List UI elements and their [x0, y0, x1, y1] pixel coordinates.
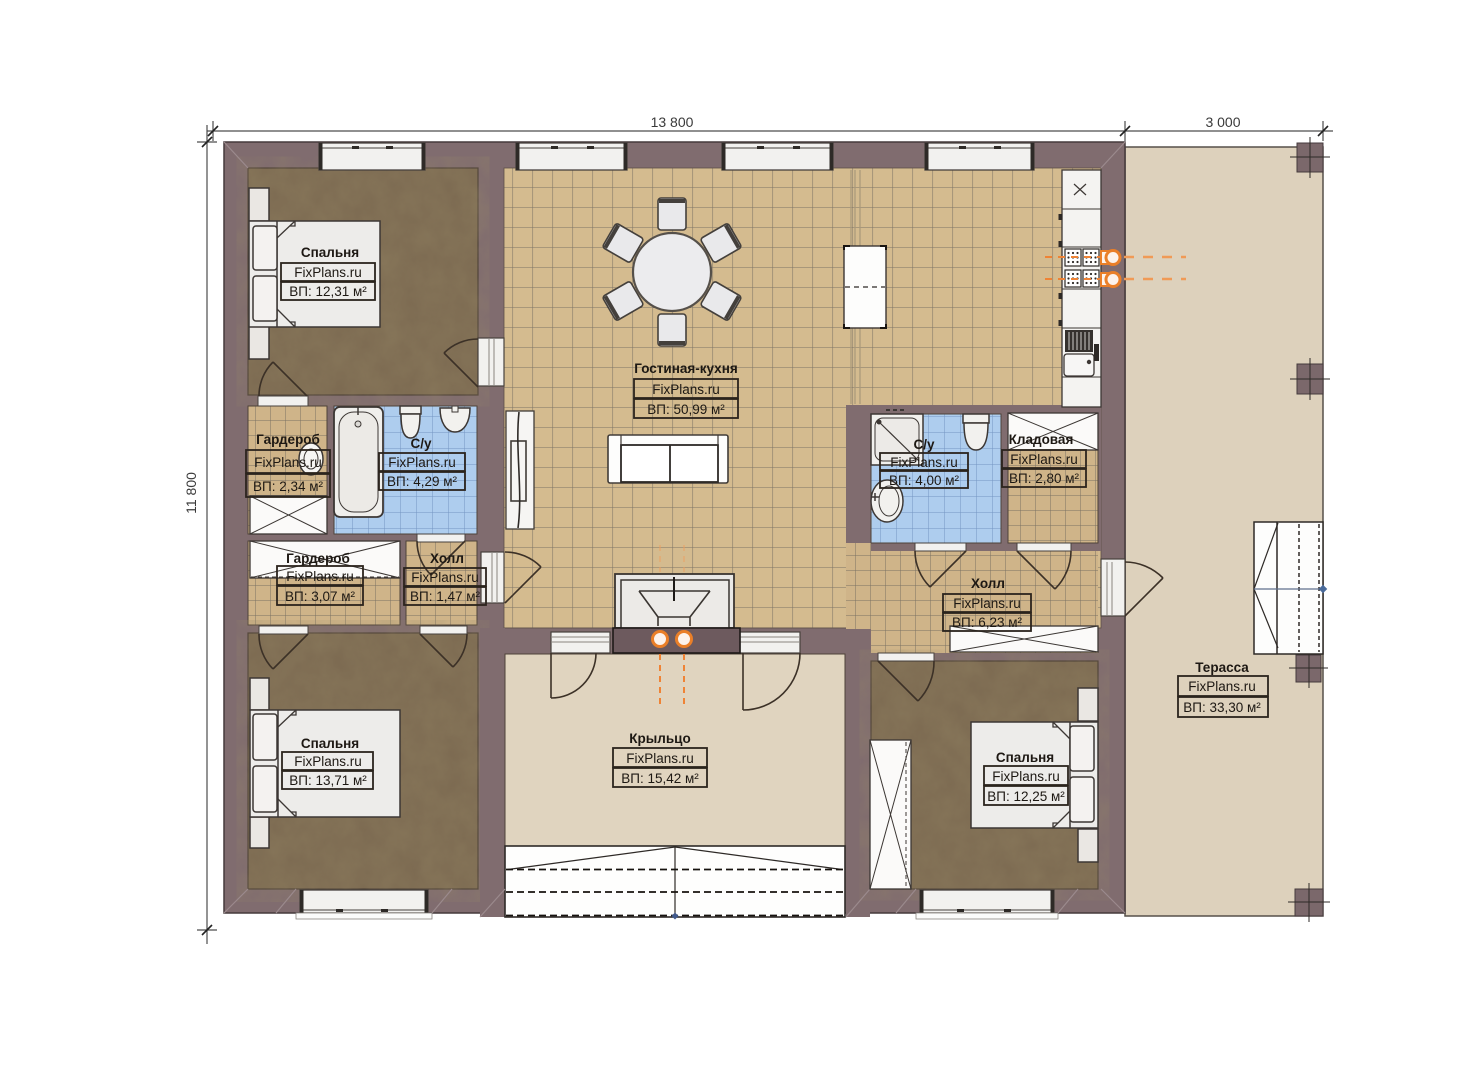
svg-text:FixPlans.ru: FixPlans.ru [294, 265, 362, 280]
svg-text:11 800: 11 800 [183, 472, 199, 514]
svg-text:FixPlans.ru: FixPlans.ru [953, 596, 1021, 611]
svg-text:С/у: С/у [410, 436, 432, 451]
svg-text:Гардероб: Гардероб [286, 551, 350, 566]
svg-text:Спальня: Спальня [996, 750, 1054, 765]
svg-text:FixPlans.ru: FixPlans.ru [254, 455, 322, 470]
svg-text:FixPlans.ru: FixPlans.ru [626, 751, 694, 766]
svg-text:FixPlans.ru: FixPlans.ru [294, 754, 362, 769]
svg-text:ВП: 33,30 м²: ВП: 33,30 м² [1183, 700, 1261, 715]
svg-text:Холл: Холл [971, 576, 1005, 591]
svg-text:FixPlans.ru: FixPlans.ru [652, 382, 720, 397]
svg-text:ВП: 3,07 м²: ВП: 3,07 м² [285, 589, 356, 604]
svg-text:ВП: 4,29 м²: ВП: 4,29 м² [387, 474, 458, 489]
svg-text:ВП: 12,25 м²: ВП: 12,25 м² [987, 789, 1065, 804]
svg-text:ВП: 4,00 м²: ВП: 4,00 м² [889, 473, 960, 488]
svg-text:13 800: 13 800 [651, 114, 694, 130]
svg-text:Кладовая: Кладовая [1009, 432, 1074, 447]
svg-text:ВП: 1,47 м²: ВП: 1,47 м² [410, 589, 481, 604]
svg-text:Холл: Холл [430, 551, 464, 566]
svg-text:ВП: 2,80 м²: ВП: 2,80 м² [1009, 471, 1080, 486]
svg-text:ВП: 50,99 м²: ВП: 50,99 м² [647, 402, 725, 417]
svg-text:FixPlans.ru: FixPlans.ru [286, 569, 354, 584]
svg-text:FixPlans.ru: FixPlans.ru [411, 570, 479, 585]
svg-text:Крыльцо: Крыльцо [629, 731, 690, 746]
svg-text:FixPlans.ru: FixPlans.ru [992, 769, 1060, 784]
svg-text:ВП: 2,34 м²: ВП: 2,34 м² [253, 479, 324, 494]
svg-text:Спальня: Спальня [301, 736, 359, 751]
svg-text:Гардероб: Гардероб [256, 432, 320, 447]
svg-text:FixPlans.ru: FixPlans.ru [388, 455, 456, 470]
svg-text:ВП: 12,31 м²: ВП: 12,31 м² [289, 284, 367, 299]
svg-text:FixPlans.ru: FixPlans.ru [1010, 452, 1078, 467]
svg-text:С/у: С/у [913, 437, 935, 452]
svg-text:ВП: 15,42 м²: ВП: 15,42 м² [621, 771, 699, 786]
svg-text:3 000: 3 000 [1205, 114, 1240, 130]
svg-text:FixPlans.ru: FixPlans.ru [1188, 679, 1256, 694]
svg-text:Терасса: Терасса [1195, 660, 1249, 675]
svg-text:Гостиная-кухня: Гостиная-кухня [634, 361, 737, 376]
svg-text:FixPlans.ru: FixPlans.ru [890, 455, 958, 470]
svg-text:Спальня: Спальня [301, 245, 359, 260]
svg-text:ВП: 6,23 м²: ВП: 6,23 м² [952, 615, 1023, 630]
svg-text:ВП: 13,71 м²: ВП: 13,71 м² [289, 773, 367, 788]
